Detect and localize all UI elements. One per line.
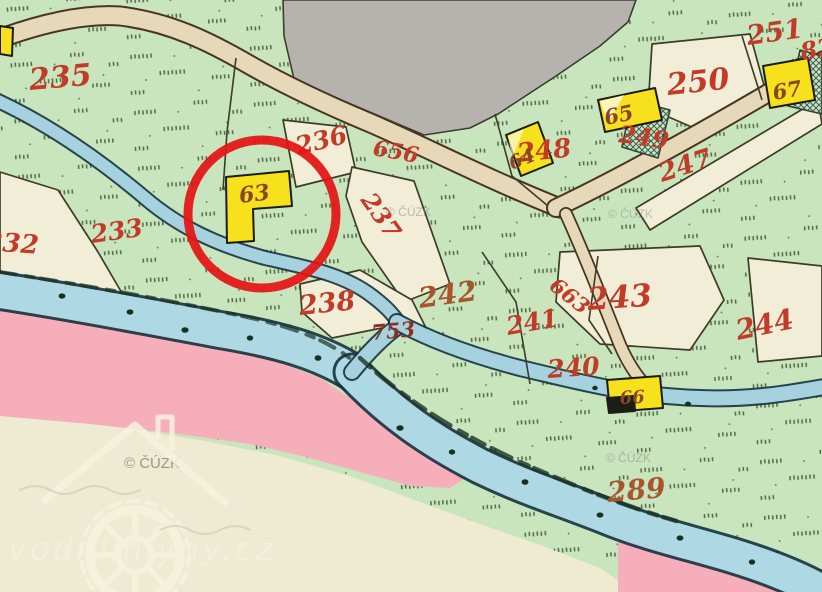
cadastral-map-canvas[interactable]: 235 232 233 236 237 238 242 241 240 243 … (0, 0, 822, 592)
watermark-cuzk-1: © ČÚZK (386, 204, 431, 219)
watermark-site: vodnimlyny.cz (8, 530, 275, 568)
parcel-label-240: 240 (545, 351, 601, 384)
parcel-label-238: 238 (296, 285, 356, 322)
building-label-63: 63 (238, 179, 272, 209)
parcel-label-232: 232 (0, 227, 40, 261)
water-label-753: 753 (370, 316, 416, 345)
building-label-66: 66 (619, 387, 646, 409)
parcel-label-289: 289 (605, 471, 667, 509)
watermark-cuzk-2: © ČÚZK (608, 206, 653, 221)
parcel-label-235: 235 (27, 58, 93, 98)
building-top-left (0, 26, 13, 56)
watermark-cuzk-3: © ČÚZK (606, 450, 651, 465)
parcel-label-250: 250 (664, 62, 731, 103)
parcel-label-243: 243 (585, 278, 653, 318)
building-label-67: 67 (771, 75, 805, 105)
